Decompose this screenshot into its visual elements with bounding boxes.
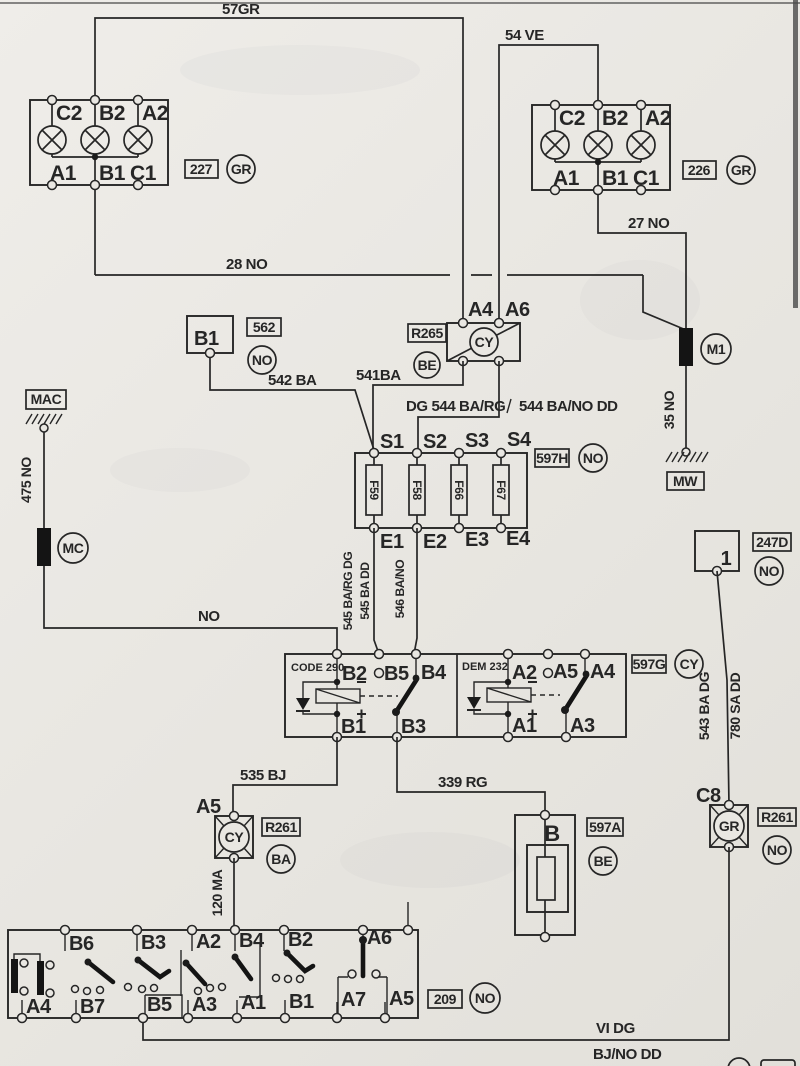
sw-terminal-a6: A6 bbox=[367, 927, 392, 949]
wire-label-35no: 35 NO bbox=[661, 390, 677, 429]
sw-terminal-b4: B4 bbox=[239, 930, 265, 952]
lamp226-terminal-c2: C2 bbox=[559, 107, 585, 130]
switch-mc: MC NO bbox=[37, 528, 337, 654]
wire-339rg: 339 RG bbox=[397, 737, 545, 815]
f597a-label: B bbox=[544, 821, 560, 846]
wire-535bj: 535 BJ bbox=[233, 737, 337, 816]
wire-label-27no: 27 NO bbox=[628, 215, 670, 232]
wire-label-475no: 475 NO bbox=[18, 457, 34, 503]
rly-terminal-a3: A3 bbox=[570, 715, 595, 737]
lever-b3 bbox=[138, 960, 169, 977]
fb-terminal-s2: S2 bbox=[423, 431, 447, 453]
lamp227-code: GR bbox=[231, 161, 251, 177]
lever-b2 bbox=[287, 953, 313, 971]
lamp-unit-227: C2 B2 A2 A1 B1 C1 227 GR bbox=[30, 96, 255, 190]
wiring-diagram-page: 57GR 54 VE 28 NO 27 NO C2 B2 A2 A1 B1 C1… bbox=[0, 0, 800, 1066]
relay-right-name: DEM 232 bbox=[462, 661, 508, 673]
switch-unit-209: B6 B3 A2 B4 B2 A6 A4 B7 B5 A3 A1 B1 A7 A… bbox=[8, 902, 500, 1023]
unit562-code: NO bbox=[252, 352, 273, 368]
sw-terminal-a1: A1 bbox=[241, 992, 266, 1014]
unit562-id: 562 bbox=[253, 319, 276, 335]
r261b-id: R261 bbox=[761, 809, 793, 825]
wire-label-57gr: 57GR bbox=[222, 1, 260, 18]
sw-id: 209 bbox=[434, 991, 457, 1007]
r261a-terminal-a5: A5 bbox=[196, 796, 221, 818]
wiring-diagram: 57GR 54 VE 28 NO 27 NO C2 B2 A2 A1 B1 C1… bbox=[0, 0, 800, 1066]
fuse-unit-597a: B 597A BE bbox=[515, 811, 623, 942]
fb-terminal-e2: E2 bbox=[423, 531, 447, 553]
relay-unit-597g: CODE 290 DEM 232 bbox=[285, 650, 703, 742]
r261a-id: R261 bbox=[265, 819, 297, 835]
r265-code: BE bbox=[418, 357, 437, 373]
sw-terminal-b5: B5 bbox=[147, 994, 172, 1016]
sw-terminal-b1: B1 bbox=[289, 991, 314, 1013]
rly-terminal-a5: A5 bbox=[553, 661, 578, 683]
lamp-unit-226: C2 B2 A2 A1 B1 C1 226 GR bbox=[532, 101, 755, 195]
mac-ground: MAC 475 NO bbox=[18, 390, 66, 528]
fb-terminal-e4: E4 bbox=[506, 528, 531, 550]
diode-dem232 bbox=[467, 697, 481, 709]
connector-247d: 1 247D NO 543 BA DG 780 SA DD bbox=[695, 531, 791, 805]
wire-label-544a: DG 544 BA/RG bbox=[406, 398, 505, 415]
lamp226-id: 226 bbox=[688, 162, 711, 178]
rly-terminal-b5: B5 bbox=[384, 663, 409, 685]
mc-label: MC bbox=[63, 540, 84, 556]
lamp226-code: GR bbox=[731, 162, 751, 178]
lever-b6 bbox=[88, 962, 113, 982]
wire-label-120ma: 120 MA bbox=[209, 869, 225, 916]
c247-code: NO bbox=[759, 563, 780, 579]
fb-terminal-e3: E3 bbox=[465, 529, 489, 551]
relay-left-name: CODE 290 bbox=[291, 662, 344, 674]
fuse-f58: F58 bbox=[410, 480, 424, 500]
relay-r261-cy: A5 CY R261 BA 120 MA bbox=[196, 796, 300, 930]
sw-terminal-b3: B3 bbox=[141, 932, 166, 954]
r261b-code: NO bbox=[767, 842, 788, 858]
sw-terminal-b7: B7 bbox=[80, 996, 105, 1018]
rly-terminal-b4: B4 bbox=[421, 662, 447, 684]
f597a-id: 597A bbox=[589, 819, 621, 835]
wire-label-543: 543 BA DG bbox=[696, 671, 712, 740]
sw-terminal-b2: B2 bbox=[288, 929, 313, 951]
wire-label-546: 546 BA/NO bbox=[393, 560, 407, 618]
rly-code: CY bbox=[680, 656, 700, 672]
wire-label-544b: 544 BA/NO DD bbox=[519, 398, 618, 415]
wire-label-no: NO bbox=[198, 608, 220, 625]
wire-label-339rg: 339 RG bbox=[438, 774, 487, 791]
wire-label-541ba: 541BA bbox=[356, 367, 401, 384]
rly-terminal-a2: A2 bbox=[512, 662, 537, 684]
lamp226-terminal-b2: B2 bbox=[602, 107, 628, 130]
sw-terminal-a4: A4 bbox=[26, 996, 52, 1018]
r261a-code: BA bbox=[271, 851, 291, 867]
sw-terminal-a3: A3 bbox=[192, 994, 217, 1016]
fb-terminal-e1: E1 bbox=[380, 531, 404, 553]
c247-id: 247D bbox=[756, 534, 788, 550]
sw-terminal-b6: B6 bbox=[69, 933, 94, 955]
wire-545: 545 BA/RG DG 545 BA DD bbox=[341, 528, 379, 654]
sw-terminal-a5: A5 bbox=[389, 988, 414, 1010]
unit-562: B1 562 NO 542 BA bbox=[187, 316, 374, 450]
r261b-gr: GR bbox=[719, 818, 739, 834]
lamp227-terminal-a1: A1 bbox=[50, 162, 77, 185]
wire-54ve: 54 VE bbox=[499, 27, 598, 323]
lamp226-terminal-b1: B1 bbox=[602, 167, 629, 190]
wire-label-545b: 545 BA DD bbox=[358, 562, 372, 620]
f597a-code: BE bbox=[594, 853, 613, 869]
lamp227-id: 227 bbox=[190, 161, 213, 177]
m1-ground-label: MW bbox=[673, 473, 698, 489]
ground-symbol-mac bbox=[26, 414, 62, 424]
relay-r261-gr: C8 GR R261 NO bbox=[696, 785, 796, 864]
motor-m1: M1 35 NO MW bbox=[661, 328, 731, 490]
fuse-f59: F59 bbox=[367, 480, 381, 500]
lever-a2 bbox=[186, 963, 205, 984]
rly-terminal-a1: A1 bbox=[512, 715, 537, 737]
rly-terminal-b1: B1 bbox=[341, 716, 366, 738]
cropped-next-page-circle bbox=[728, 1058, 750, 1066]
lamp227-terminal-c2: C2 bbox=[56, 102, 82, 125]
lamp227-terminal-c1: C1 bbox=[130, 162, 157, 185]
rly-terminal-b2: B2 bbox=[342, 663, 367, 685]
r261a-cy: CY bbox=[225, 829, 245, 845]
fuse-f67: F67 bbox=[494, 480, 508, 500]
c247-pin: 1 bbox=[721, 548, 732, 570]
wire-label-780: 780 SA DD bbox=[727, 672, 743, 739]
fb-terminal-s1: S1 bbox=[380, 431, 404, 453]
rly-terminal-b3: B3 bbox=[401, 716, 426, 738]
relay-r265-cy: CY bbox=[475, 334, 495, 350]
fb-terminal-s4: S4 bbox=[507, 429, 532, 451]
sw-terminal-a2: A2 bbox=[196, 931, 221, 953]
lamp227-terminal-b2: B2 bbox=[99, 102, 125, 125]
fuse-f66: F66 bbox=[452, 480, 466, 500]
fb-id: 597H bbox=[536, 450, 568, 466]
lamp226-terminal-a1: A1 bbox=[553, 167, 580, 190]
wire-label-54ve: 54 VE bbox=[505, 27, 544, 44]
wire-label-bjno: BJ/NO DD bbox=[593, 1046, 662, 1063]
rly-id: 597G bbox=[633, 656, 666, 672]
sw-terminal-a7: A7 bbox=[341, 989, 366, 1011]
mac-label: MAC bbox=[31, 391, 62, 407]
wire-label-542ba: 542 BA bbox=[268, 372, 317, 389]
sw-code: NO bbox=[475, 990, 496, 1006]
r265-terminal-a6: A6 bbox=[505, 299, 530, 321]
wire-label-vidg: VI DG bbox=[596, 1020, 635, 1037]
fusebox-597h: F59 F58 F66 F67 S1 S2 S3 S4 E1 E2 E3 E4 … bbox=[355, 429, 607, 553]
fb-terminal-s3: S3 bbox=[465, 430, 489, 452]
cropped-next-page-box bbox=[761, 1060, 795, 1066]
wire-label-535bj: 535 BJ bbox=[240, 767, 286, 784]
m1-label: M1 bbox=[707, 341, 726, 357]
lamp227-terminal-b1: B1 bbox=[99, 162, 126, 185]
lamp226-terminal-c1: C1 bbox=[633, 167, 660, 190]
fb-code: NO bbox=[583, 450, 604, 466]
wire-label-28no: 28 NO bbox=[226, 256, 268, 273]
r261b-terminal-c8: C8 bbox=[696, 785, 721, 807]
r265-id: R265 bbox=[411, 325, 443, 341]
r265-terminal-a4: A4 bbox=[468, 299, 494, 321]
diode-code290 bbox=[296, 698, 310, 710]
wire-label-545a: 545 BA/RG DG bbox=[341, 552, 355, 631]
rly-terminal-a4: A4 bbox=[590, 661, 616, 683]
lever-b4 bbox=[235, 957, 251, 979]
lamp227-terminal-a2: A2 bbox=[142, 102, 168, 125]
unit562-label: B1 bbox=[194, 328, 219, 350]
lamp226-terminal-a2: A2 bbox=[645, 107, 671, 130]
